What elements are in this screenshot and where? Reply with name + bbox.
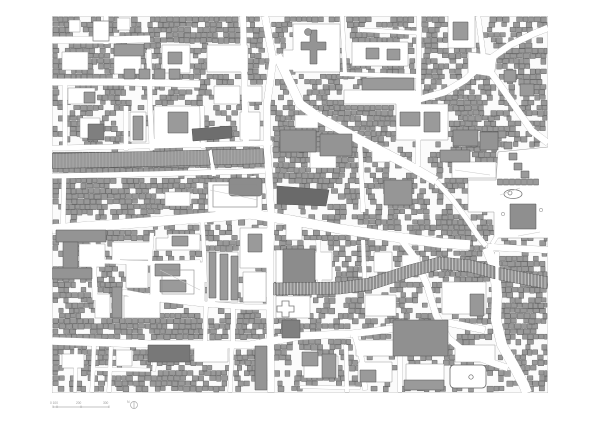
svg-text:200: 200	[76, 401, 82, 405]
svg-text:0 100: 0 100	[50, 401, 58, 405]
svg-text:300: 300	[103, 401, 109, 405]
